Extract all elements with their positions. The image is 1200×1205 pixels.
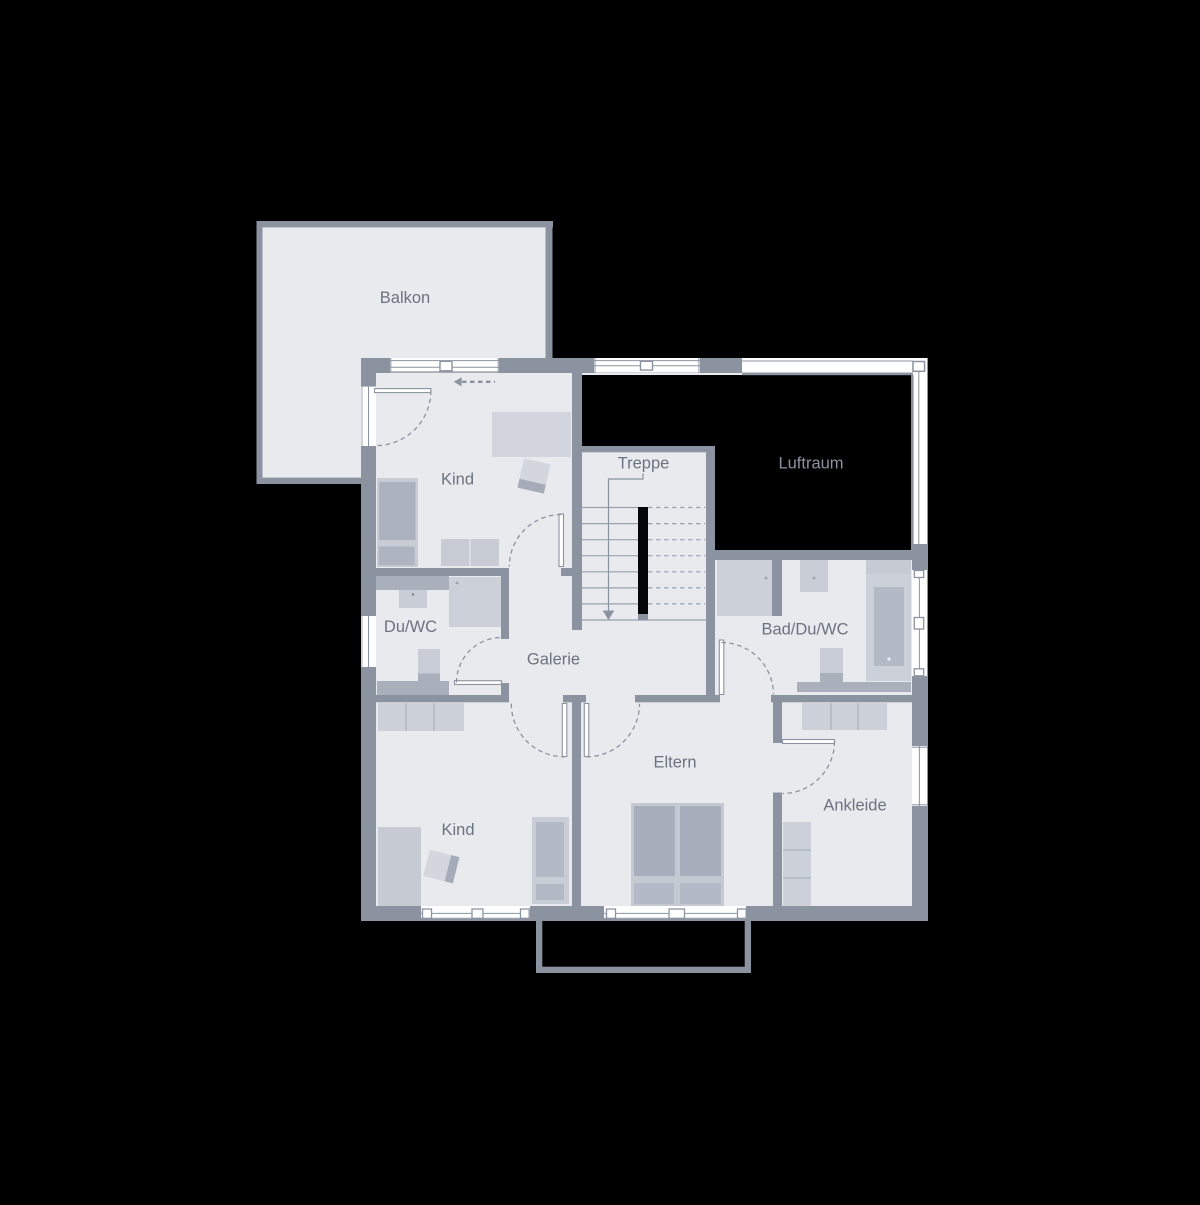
svg-text:Treppe: Treppe — [618, 455, 670, 473]
svg-text:Luftraum: Luftraum — [778, 455, 843, 473]
svg-text:Eltern: Eltern — [653, 754, 696, 772]
svg-text:Ankleide: Ankleide — [823, 797, 886, 815]
svg-text:Du/WC: Du/WC — [384, 618, 437, 636]
svg-text:Balkon: Balkon — [380, 289, 430, 307]
svg-text:Kind: Kind — [441, 471, 474, 489]
svg-text:Galerie: Galerie — [527, 651, 580, 669]
svg-text:Bad/Du/WC: Bad/Du/WC — [761, 621, 848, 639]
svg-text:Kind: Kind — [441, 821, 474, 839]
